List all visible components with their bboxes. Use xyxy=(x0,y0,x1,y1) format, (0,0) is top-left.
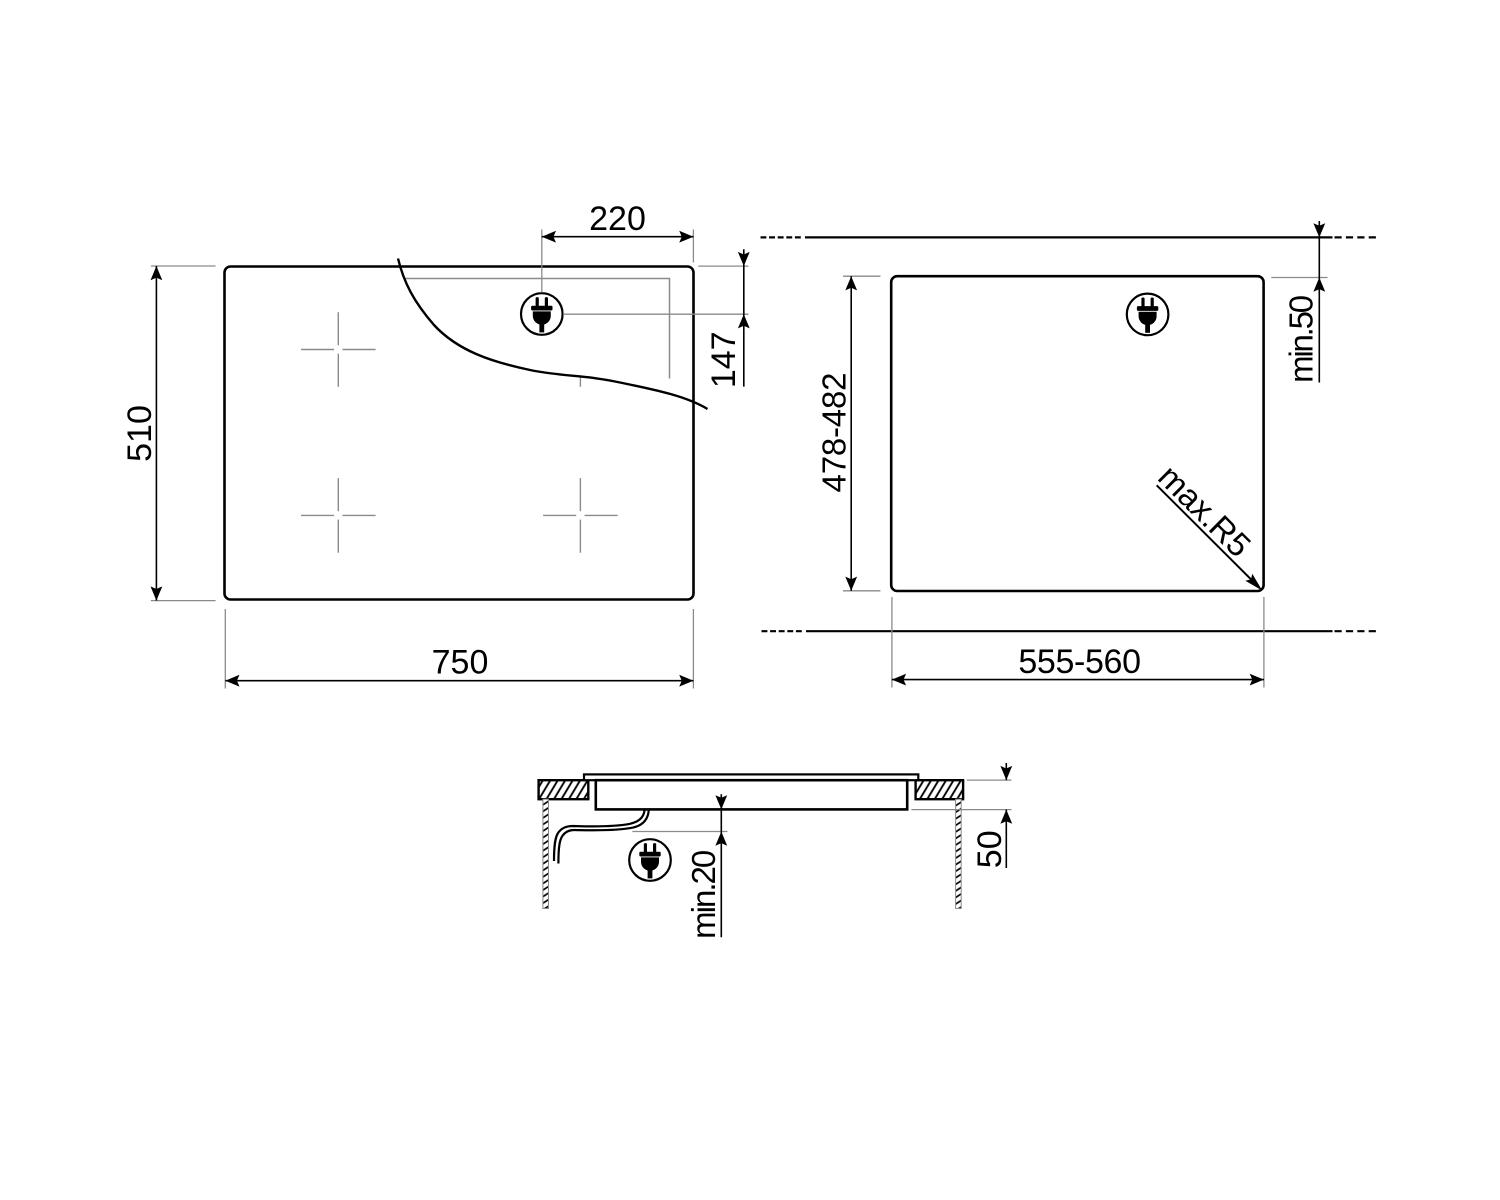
svg-text:220: 220 xyxy=(589,200,646,238)
svg-text:147: 147 xyxy=(705,331,743,388)
svg-text:min.20: min.20 xyxy=(685,850,722,939)
svg-text:750: 750 xyxy=(432,643,489,681)
svg-text:50: 50 xyxy=(971,830,1009,868)
svg-text:478-482: 478-482 xyxy=(815,373,852,493)
svg-text:555-560: 555-560 xyxy=(1018,643,1140,681)
svg-text:510: 510 xyxy=(121,405,159,462)
svg-text:min.50: min.50 xyxy=(1283,295,1320,383)
